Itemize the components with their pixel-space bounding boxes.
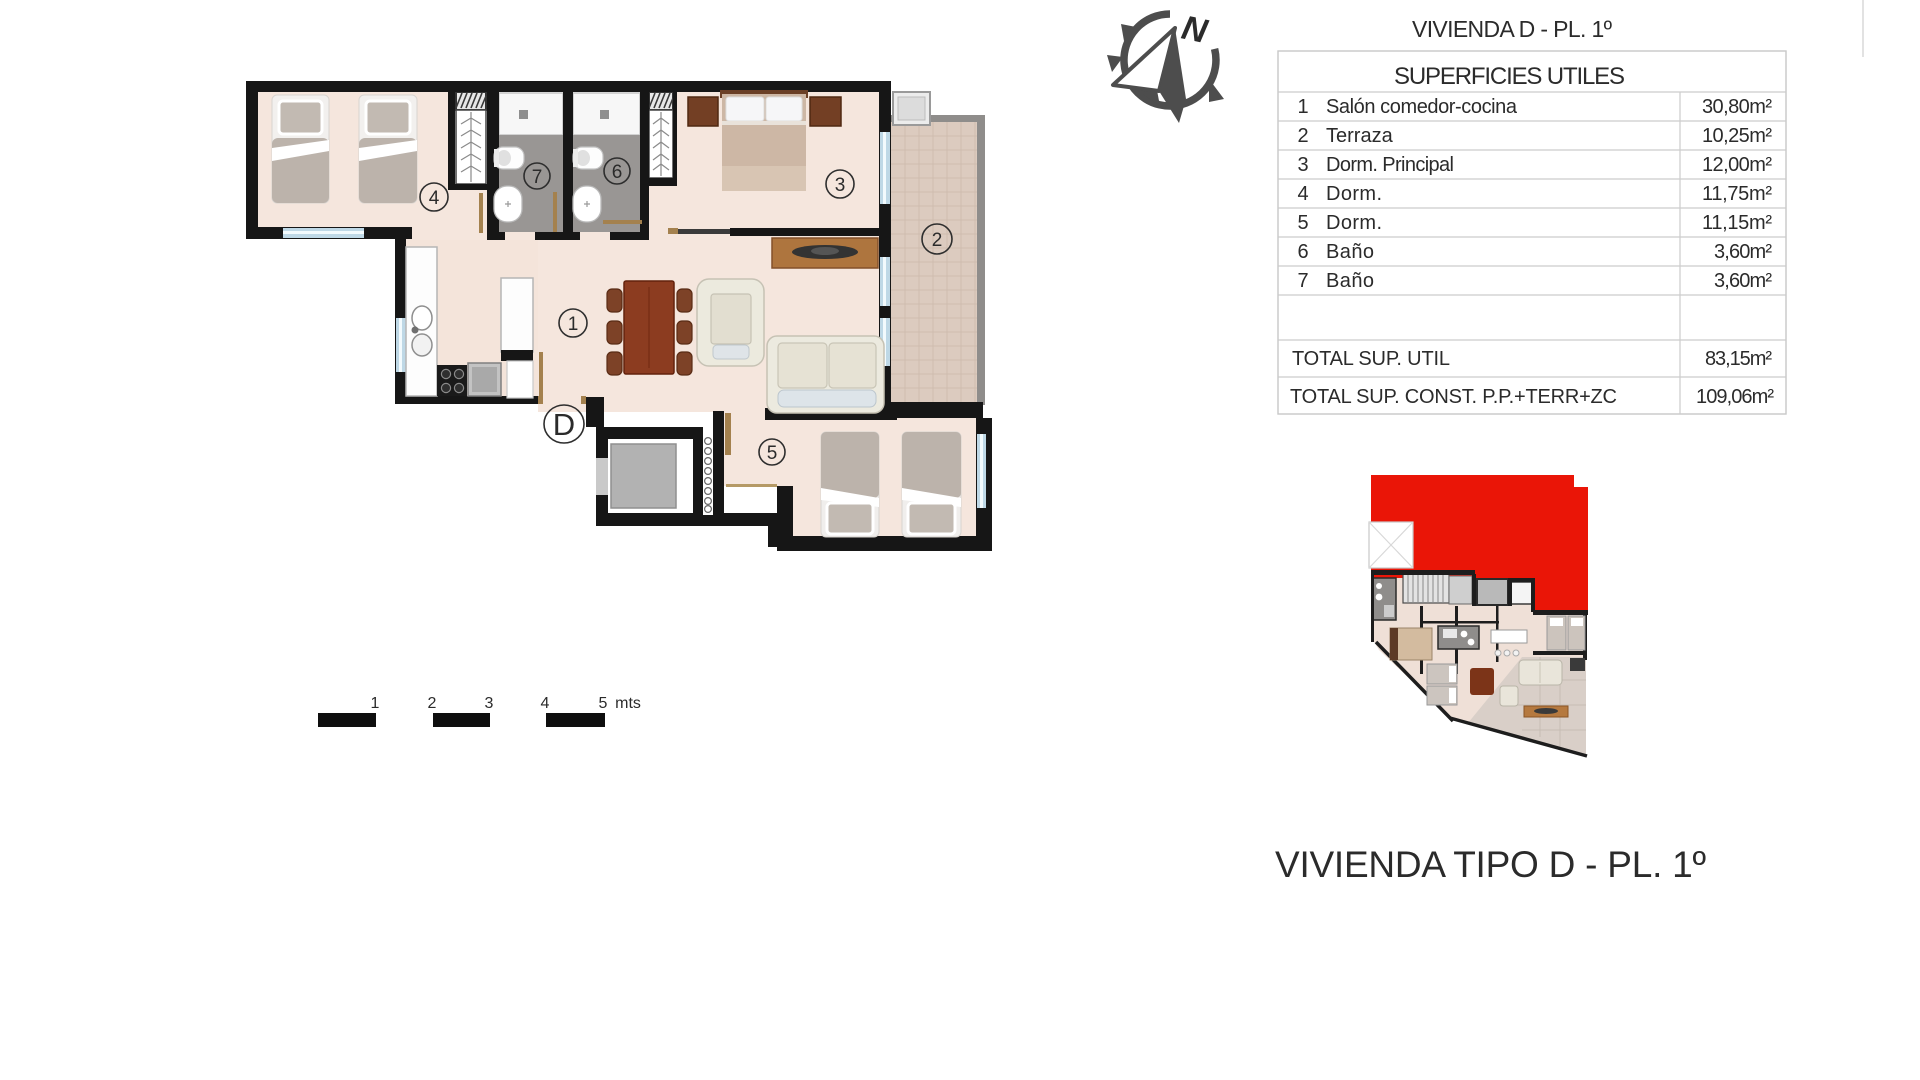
svg-text:11,75m²: 11,75m² [1702, 183, 1772, 205]
svg-text:4: 4 [429, 188, 440, 209]
svg-text:2: 2 [1297, 125, 1308, 147]
svg-text:Dorm.: Dorm. [1326, 212, 1382, 234]
svg-text:TOTAL SUP. UTIL: TOTAL SUP. UTIL [1292, 348, 1450, 370]
svg-text:Baño: Baño [1326, 241, 1374, 263]
svg-text:4: 4 [541, 695, 550, 712]
svg-text:1: 1 [568, 314, 579, 335]
svg-text:30,80m²: 30,80m² [1702, 96, 1772, 118]
svg-text:3,60m²: 3,60m² [1714, 270, 1772, 292]
svg-text:6: 6 [612, 162, 623, 183]
svg-text:83,15m²: 83,15m² [1705, 348, 1772, 370]
svg-text:5: 5 [767, 443, 778, 464]
svg-text:D: D [553, 407, 575, 442]
svg-text:N: N [1179, 9, 1212, 52]
svg-text:3: 3 [485, 695, 494, 712]
svg-text:3: 3 [1297, 154, 1308, 176]
svg-text:VIVIENDA TIPO D - PL. 1º: VIVIENDA TIPO D - PL. 1º [1275, 844, 1706, 885]
svg-text:7: 7 [1297, 270, 1308, 292]
svg-text:TOTAL SUP. CONST. P.P.+TERR+ZC: TOTAL SUP. CONST. P.P.+TERR+ZC [1290, 386, 1617, 408]
svg-text:4: 4 [1297, 183, 1308, 205]
svg-text:Terraza: Terraza [1326, 125, 1394, 147]
svg-text:Baño: Baño [1326, 270, 1374, 292]
svg-text:1: 1 [1297, 96, 1308, 118]
svg-text:11,15m²: 11,15m² [1702, 212, 1772, 234]
svg-text:5: 5 [599, 695, 608, 712]
svg-text:Salón comedor-cocina: Salón comedor-cocina [1326, 96, 1518, 118]
svg-text:Dorm. Principal: Dorm. Principal [1326, 154, 1454, 176]
svg-text:12,00m²: 12,00m² [1702, 154, 1772, 176]
svg-text:7: 7 [532, 167, 543, 188]
svg-text:10,25m²: 10,25m² [1702, 125, 1772, 147]
svg-text:109,06m²: 109,06m² [1696, 386, 1774, 408]
svg-text:2: 2 [932, 230, 943, 251]
svg-text:2: 2 [428, 695, 437, 712]
svg-text:3: 3 [835, 175, 846, 196]
svg-text:1: 1 [371, 695, 380, 712]
svg-text:Dorm.: Dorm. [1326, 183, 1382, 205]
svg-text:mts: mts [615, 695, 641, 712]
svg-text:SUPERFICIES UTILES: SUPERFICIES UTILES [1394, 63, 1626, 90]
svg-text:6: 6 [1297, 241, 1308, 263]
svg-text:VIVIENDA D - PL. 1º: VIVIENDA D - PL. 1º [1412, 16, 1613, 42]
svg-text:3,60m²: 3,60m² [1714, 241, 1772, 263]
svg-text:5: 5 [1297, 212, 1308, 234]
